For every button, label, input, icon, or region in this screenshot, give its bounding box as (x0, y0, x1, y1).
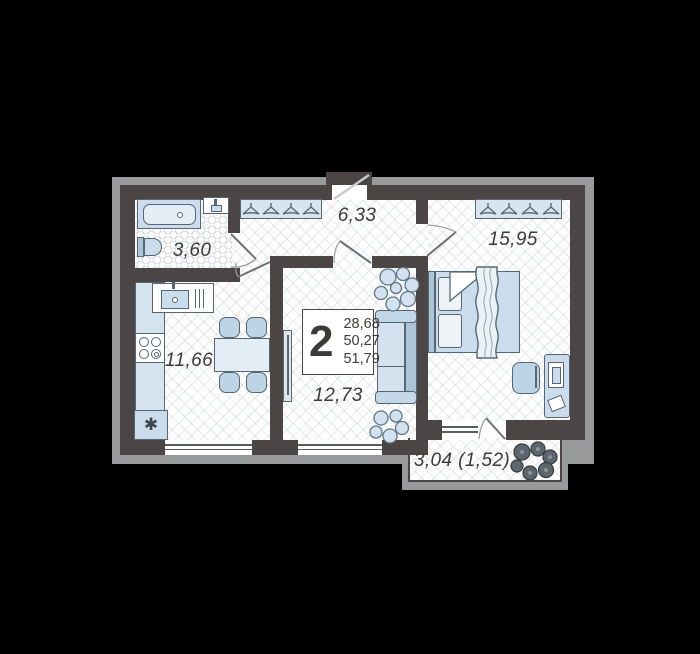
area-living: 28,68 (343, 316, 379, 334)
living-room-area-label: 12,73 (313, 385, 363, 407)
kitchen-area-label: 11,66 (165, 350, 213, 372)
bathroom-door-swing-icon (231, 234, 256, 267)
bathroom-area-label: 3,60 (173, 240, 212, 262)
bedroom-door-swing-icon (427, 225, 456, 256)
badge-areas: 28,68 50,27 51,79 (343, 316, 379, 369)
rooms-count: 2 (309, 320, 333, 364)
living-room-door-swing-icon (334, 241, 371, 263)
balcony-door-swing-icon (479, 418, 505, 439)
balcony-area-label: 3,04 (1,52) (414, 450, 510, 472)
entrance-door-swing-icon (334, 175, 369, 199)
area-total: 50,27 (343, 333, 379, 351)
bedroom-area-label: 15,95 (488, 229, 538, 251)
area-full: 51,79 (343, 351, 379, 369)
unit-info-badge: 2 28,68 50,27 51,79 (302, 309, 374, 375)
floorplan-screenshot: { "badge": { "rooms_count": "2", "areas"… (0, 0, 700, 654)
hallway-area-label: 6,33 (338, 205, 377, 227)
kitchen-door-swing-icon (236, 262, 270, 277)
